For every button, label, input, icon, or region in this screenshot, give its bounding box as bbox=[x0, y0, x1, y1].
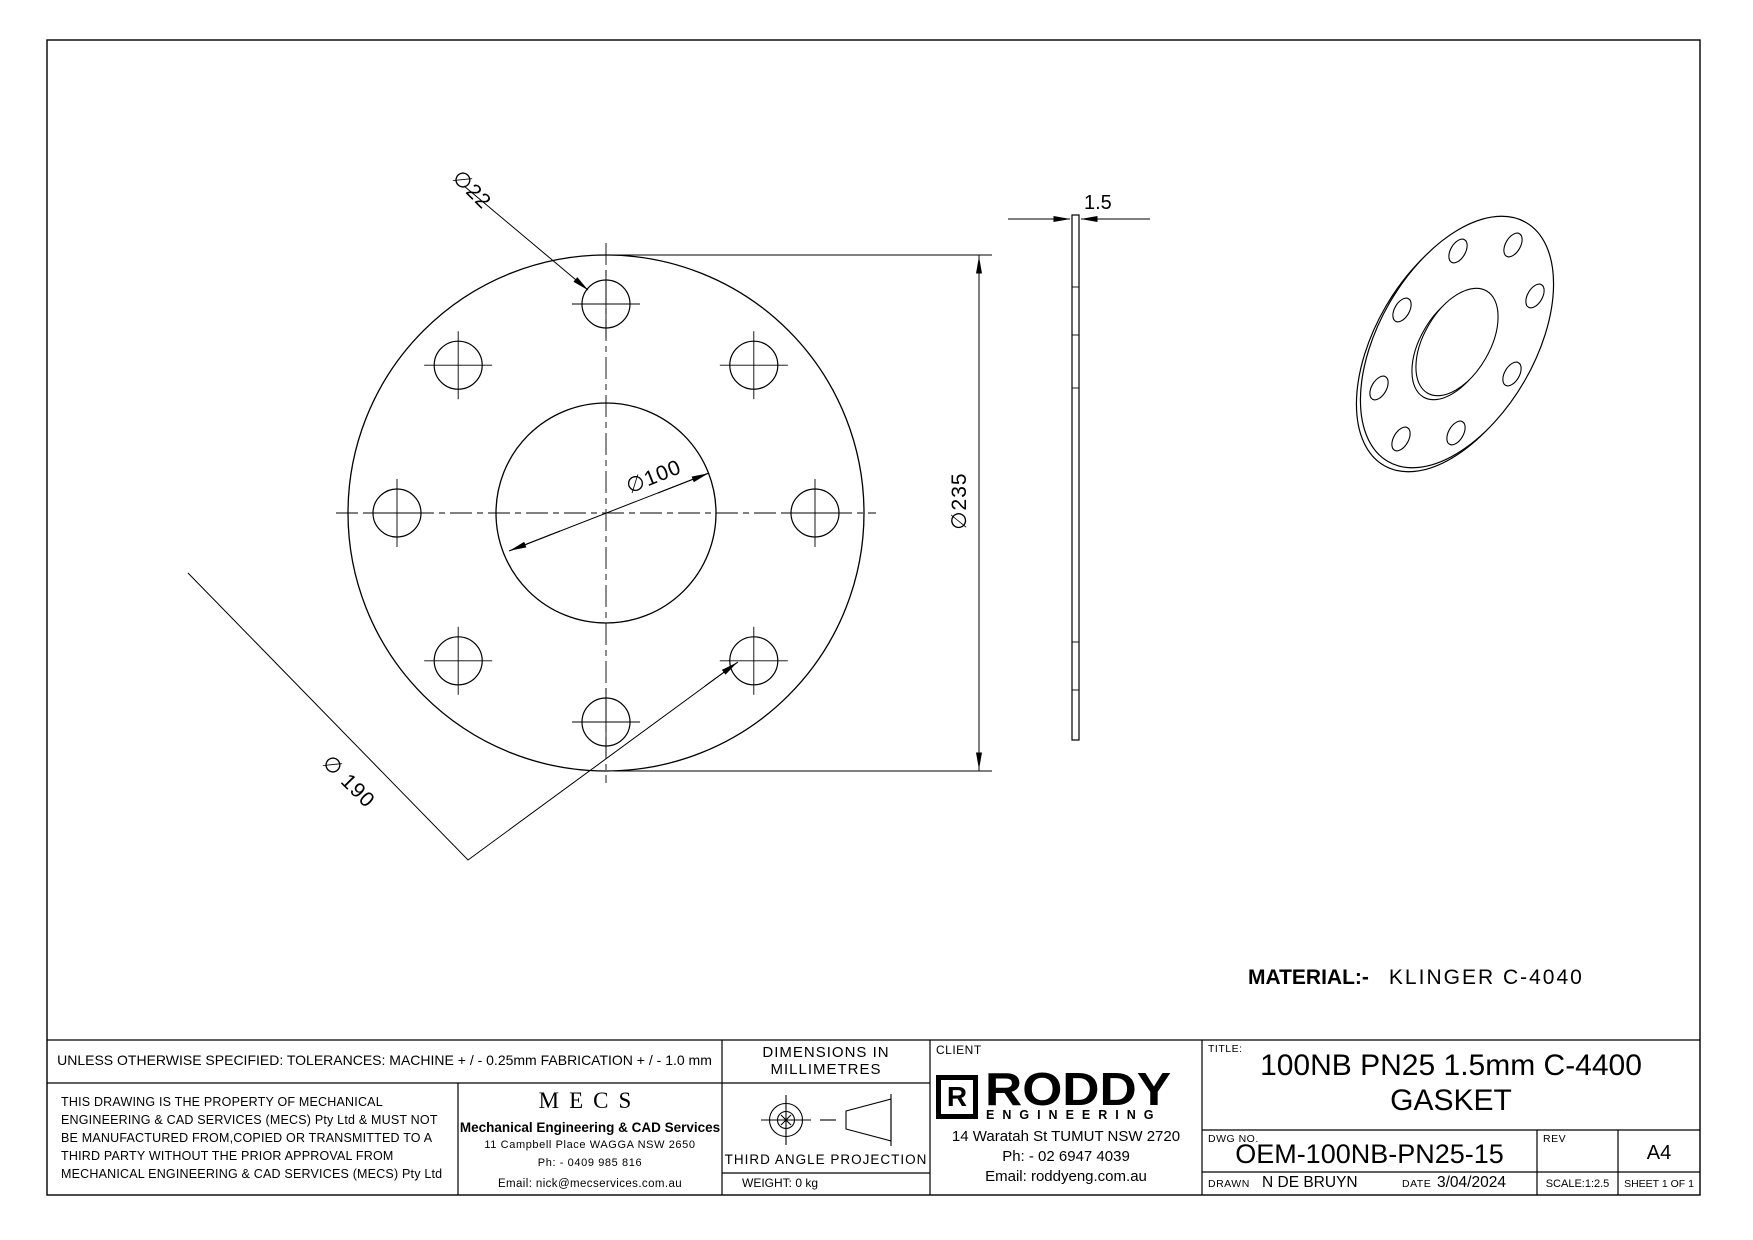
dim-100-line bbox=[509, 473, 709, 551]
client-label: CLIENT bbox=[936, 1044, 982, 1058]
drawing-title-line1: 100NB PN25 1.5mm C-4400 bbox=[1202, 1049, 1700, 1084]
roddy-logo-sub: ENGINEERING bbox=[986, 1108, 1162, 1122]
material-value: KLINGER C-4040 bbox=[1389, 966, 1584, 989]
paper-size: A4 bbox=[1618, 1142, 1700, 1165]
third-angle-projection-icon bbox=[761, 1094, 891, 1146]
mecs-address: 11 Campbell Place WAGGA NSW 2650 bbox=[458, 1139, 722, 1152]
roddy-r-logo-icon: R bbox=[936, 1075, 978, 1119]
drawn-by: N DE BRUYN bbox=[1262, 1174, 1358, 1192]
legal-line-4: THIRD PARTY WITHOUT THE PRIOR APPROVAL F… bbox=[61, 1149, 393, 1163]
roddy-logo-name: RODDY bbox=[985, 1066, 1171, 1112]
dim-190-line bbox=[188, 573, 738, 860]
side-view bbox=[1008, 215, 1150, 740]
mecs-phone: Ph: - 0409 985 816 bbox=[458, 1157, 722, 1170]
scale-label: SCALE:1:2.5 bbox=[1537, 1178, 1618, 1191]
material-label: MATERIAL:- bbox=[1248, 966, 1369, 989]
dims-in-line1: DIMENSIONS IN bbox=[722, 1044, 930, 1061]
date-value: 3/04/2024 bbox=[1437, 1174, 1506, 1192]
dims-in-line2: MILLIMETRES bbox=[722, 1061, 930, 1078]
date-label: DATE bbox=[1402, 1178, 1431, 1190]
sheet-label: SHEET 1 OF 1 bbox=[1618, 1178, 1700, 1190]
client-address: 14 Waratah St TUMUT NSW 2720 bbox=[930, 1128, 1202, 1145]
dim-outer-label: ∅235 bbox=[948, 451, 972, 551]
rev-label: REV bbox=[1543, 1133, 1566, 1145]
drawing-sheet: ∅22 ∅100 ∅235 ∅ 190 1.5 MATERIAL:-KLINGE… bbox=[0, 0, 1753, 1240]
front-view bbox=[188, 186, 992, 860]
legal-line-3: BE MANUFACTURED FROM,COPIED OR TRANSMITT… bbox=[61, 1131, 432, 1145]
mecs-name: Mechanical Engineering & CAD Services bbox=[458, 1120, 722, 1136]
dim-thickness-label: 1.5 bbox=[1084, 192, 1112, 215]
drawing-title-line2: GASKET bbox=[1202, 1084, 1700, 1119]
mecs-logo: MECS bbox=[458, 1088, 722, 1114]
sheet-border bbox=[47, 40, 1700, 1195]
isometric-view bbox=[1316, 183, 1593, 504]
legal-line-1: THIS DRAWING IS THE PROPERTY OF MECHANIC… bbox=[61, 1095, 383, 1109]
drawn-label: DRAWN bbox=[1208, 1178, 1250, 1190]
dwg-no-value: OEM-100NB-PN25-15 bbox=[1202, 1139, 1537, 1170]
legal-line-2: ENGINEERING & CAD SERVICES (MECS) Pty Lt… bbox=[61, 1113, 438, 1127]
client-email: Email: roddyeng.com.au bbox=[930, 1168, 1202, 1185]
legal-line-5: MECHANICAL ENGINEERING & CAD SERVICES (M… bbox=[61, 1167, 442, 1181]
side-profile bbox=[1072, 215, 1079, 740]
side-ticks bbox=[1072, 287, 1079, 690]
material-note: MATERIAL:-KLINGER C-4040 bbox=[1248, 966, 1584, 990]
client-phone: Ph: - 02 6947 4039 bbox=[930, 1148, 1202, 1165]
weight-label: WEIGHT: 0 kg bbox=[742, 1177, 818, 1191]
tolerances-note: UNLESS OTHERWISE SPECIFIED: TOLERANCES: … bbox=[47, 1052, 722, 1068]
projection-label: THIRD ANGLE PROJECTION bbox=[722, 1152, 930, 1168]
mecs-email: Email: nick@mecservices.com.au bbox=[458, 1178, 722, 1191]
